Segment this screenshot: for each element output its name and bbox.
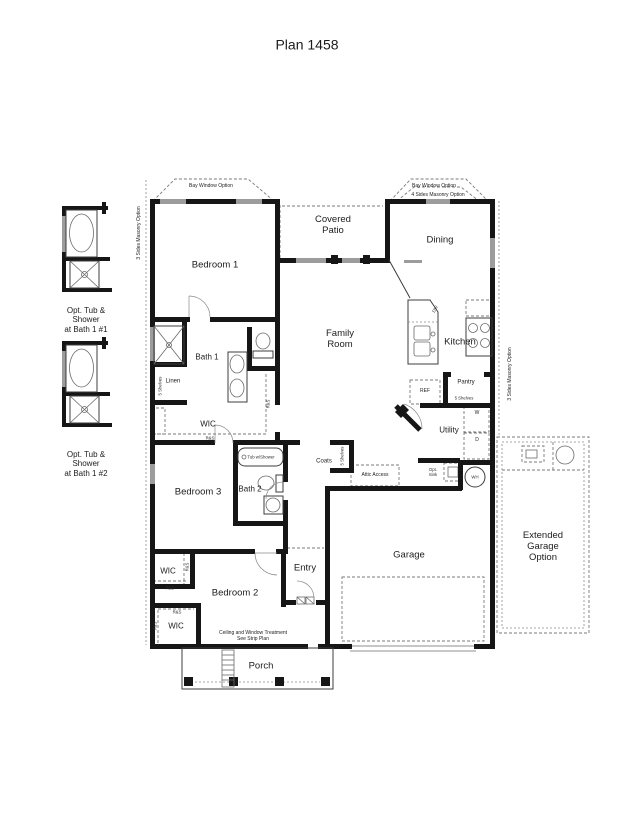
room-label-coats: Coats [316,458,332,465]
label-refrigerator: REF [420,389,430,395]
label-opt-sink: Opt. Sink [429,467,437,477]
floor-plan-drawing [0,0,639,828]
sink-bath2 [264,496,283,514]
vanity-bath1 [228,352,247,402]
room-label-extended-garage: Extended Garage Option [523,530,563,564]
label-coats-shelves: 5 Shelves [339,447,344,466]
room-label-bedroom-3: Bedroom 3 [175,486,221,497]
shower-bath1 [154,326,184,364]
room-label-entry: Entry [294,562,316,573]
page-title: Plan 1458 [275,37,338,54]
room-label-family-room: Family Room [326,328,354,350]
label-rs-1: R&S [265,400,270,409]
walls-layer [62,199,495,649]
annotation-3-sides-masonry-left: 3 Sides Masonry Option [137,206,143,259]
label-rs-2: R&S [206,435,215,440]
room-label-wic-bath1: WIC [200,419,216,428]
option2-label: Opt. Tub & Shower at Bath 1 #2 [64,450,107,478]
room-label-linen: Linen [166,378,181,385]
room-label-wic-1: WIC [160,566,176,575]
room-label-bedroom-1: Bedroom 1 [192,259,238,270]
dashed-options-layer [146,179,589,651]
label-pantry-shelves: 5 Shelves [455,395,474,400]
room-label-bath-1: Bath 1 [195,352,218,361]
room-label-dining: Dining [427,234,454,245]
toilet-bath2 [258,475,283,492]
toilet-bath1 [253,333,273,358]
label-water-heater: WH [471,474,478,479]
label-rs-4: R&S [166,585,175,590]
annotation-3-sides-masonry-right: 3 Sides Masonry Option [508,347,514,400]
room-label-kitchen: Kitchen [444,336,476,347]
annotation-ceiling-note: Ceiling and Window Treatment See Strip P… [219,631,287,643]
room-label-covered-patio: Covered Patio [315,214,351,236]
option1-tub-shower [66,210,99,288]
room-label-utility: Utility [439,425,459,434]
option2-tub-shower [66,345,99,423]
entry-sidelights [297,597,314,604]
room-label-wic-2: WIC [168,621,184,630]
label-dryer: D [475,438,479,444]
label-linen-shelves: 5 Shelves [157,377,162,396]
annotation-attic-access: Attic Access [362,473,389,479]
annotation-bay-window-right: Bay Window Option [412,184,456,190]
floor-plan-page: Plan 1458 Bedroom 1 Covered Patio Dining… [0,0,639,828]
annotation-4-sides-masonry: 4 Sides Masonry Option [411,193,464,199]
label-rs-6: R&S [173,609,182,614]
label-tub-shower: Tub w/Shower [247,454,274,459]
option1-label: Opt. Tub & Shower at Bath 1 #1 [64,306,107,334]
label-washer: W [475,411,480,417]
room-label-bedroom-2: Bedroom 2 [212,587,258,598]
room-label-porch: Porch [249,660,274,671]
label-rs-3: R&S [184,563,189,572]
annotation-bay-window-left: Bay Window Option [189,184,233,190]
room-label-pantry: Pantry [457,379,474,386]
room-label-bath-2: Bath 2 [238,484,261,493]
room-label-garage: Garage [393,549,425,560]
label-rs-5: R&S [152,622,157,631]
